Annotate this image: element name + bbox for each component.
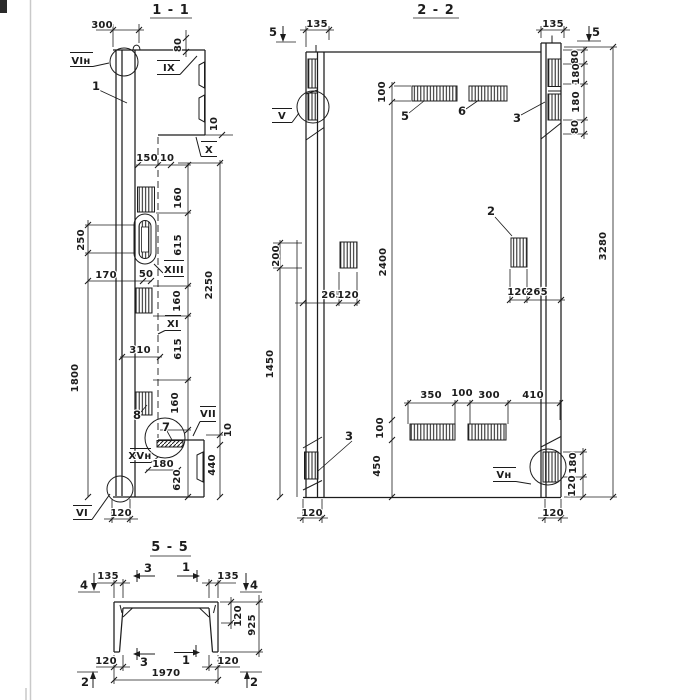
dim-135-left: 135 — [97, 571, 118, 582]
section-mark-2-left: 2 — [81, 675, 89, 689]
structural-drawing: 1 - 1 300 80 10 150 10 160 615 160 615 1… — [0, 0, 700, 700]
dim-ticks — [111, 580, 262, 683]
dim-120-flange: 120 — [233, 605, 244, 626]
dim-615-1: 615 — [173, 234, 184, 255]
node-label-xiii: XIII — [164, 265, 184, 276]
dim-200: 200 — [271, 245, 282, 266]
lifting-loop — [133, 45, 140, 50]
section-1-1-title: 1 - 1 — [152, 3, 190, 18]
bottom-plate — [468, 424, 506, 440]
part-label-2: 2 — [487, 204, 495, 218]
plate-5 — [412, 86, 457, 101]
section-mark-4-left: 4 — [80, 578, 88, 592]
node-label-xv: XVн — [128, 451, 151, 462]
dim-450: 450 — [372, 455, 383, 476]
dim-180-1: 180 — [571, 63, 582, 84]
rebar-mark-3-bottom: 3 — [140, 655, 148, 669]
dim-410: 410 — [522, 390, 543, 401]
dim-3280: 3280 — [598, 232, 609, 261]
rib-key — [308, 93, 318, 120]
embedded-plate — [138, 187, 155, 212]
slot-window — [142, 227, 149, 252]
dim-120-bottom-left: 120 — [95, 656, 116, 667]
rib-key — [308, 59, 318, 88]
embedded-plate — [136, 288, 152, 313]
detail-circle-vi-top — [110, 48, 138, 76]
detail-circle-vi-bottom — [107, 476, 133, 502]
lifting-pins — [316, 36, 552, 53]
node-label-shelves — [70, 53, 217, 520]
dim-160-3: 160 — [170, 392, 181, 413]
dim-50: 50 — [139, 269, 153, 280]
node-label-x: X — [205, 145, 213, 156]
dim-1450: 1450 — [265, 350, 276, 379]
dim-120-left: 120 — [337, 290, 358, 301]
web-plate-2 — [511, 238, 527, 267]
dim-100-top: 100 — [377, 81, 388, 102]
s2-embedded-plates — [305, 59, 562, 482]
dim-2400: 2400 — [378, 248, 389, 277]
section-mark-5-left: 5 — [269, 25, 277, 39]
scan-edge — [0, 0, 31, 700]
rib-key — [548, 94, 561, 120]
web-plate — [340, 242, 357, 268]
node-label-vii: VII — [200, 409, 216, 420]
plate-6 — [469, 86, 507, 101]
dim-180-2: 180 — [571, 91, 582, 112]
rib-key — [543, 452, 558, 482]
section-5-5-title: 5 - 5 — [151, 540, 189, 555]
rib-key — [305, 452, 319, 479]
dim-350: 350 — [420, 390, 441, 401]
part-label-3-top: 3 — [513, 111, 521, 125]
section-2-2-title: 2 - 2 — [417, 3, 455, 18]
rib-key — [548, 59, 561, 87]
dim-265-right: 265 — [526, 287, 547, 298]
rebar-mark-1-top: 1 — [182, 560, 190, 574]
dim-1970: 1970 — [152, 668, 181, 679]
dim-300: 300 — [91, 20, 112, 31]
rebar-mark-1-bottom: 1 — [182, 653, 190, 667]
section-1-1: 1 - 1 300 80 10 150 10 160 615 160 615 1… — [70, 3, 234, 523]
node-label-vi-bottom: VI — [76, 508, 88, 519]
dim-135-right: 135 — [542, 19, 563, 30]
node-label-vn: Vн — [496, 470, 511, 481]
dim-120-bottom-right: 120 — [542, 508, 563, 519]
dim-80-1: 80 — [570, 50, 581, 64]
dim-150: 150 — [136, 153, 157, 164]
dim-80: 80 — [173, 38, 184, 52]
dim-10-step: 10 — [160, 153, 174, 164]
s1-outline — [113, 45, 205, 497]
dim-120: 120 — [110, 508, 131, 519]
node-label-ix: IX — [163, 63, 175, 74]
part-label-8: 8 — [133, 408, 141, 422]
part-label-1: 1 — [92, 79, 100, 93]
section-mark-2-right: 2 — [250, 675, 258, 689]
dim-1800: 1800 — [70, 364, 81, 393]
dim-180-3: 180 — [568, 452, 579, 473]
dim-120-bottom-left: 120 — [301, 508, 322, 519]
dim-120-3: 120 — [567, 475, 578, 496]
dim-180: 180 — [152, 459, 173, 470]
rebar-mark-3-top: 3 — [144, 561, 152, 575]
part-label-7: 7 — [162, 420, 170, 434]
drawing-sheet: 1 - 1 300 80 10 150 10 160 615 160 615 1… — [0, 0, 700, 700]
dim-135-left: 135 — [306, 19, 327, 30]
bottom-plate — [410, 424, 455, 440]
dim-160-2: 160 — [172, 290, 183, 311]
dim-300: 300 — [478, 390, 499, 401]
dim-170: 170 — [95, 270, 116, 281]
node-label-vi-top: VIн — [71, 56, 90, 67]
corner-haunches — [120, 605, 216, 617]
scan-corner-mark — [0, 0, 7, 13]
part-leaders — [318, 100, 545, 471]
node-label-xi: XI — [167, 319, 179, 330]
dim-615-2: 615 — [173, 338, 184, 359]
dim-925: 925 — [247, 614, 258, 635]
section-mark-4-right: 4 — [250, 578, 258, 592]
dim-100-bottom: 100 — [375, 417, 386, 438]
dim-10-top: 10 — [209, 117, 220, 131]
dim-120-bottom-right: 120 — [217, 656, 238, 667]
part-label-3-bottom: 3 — [345, 429, 353, 443]
section-5-5: 5 - 5 135 135 4 4 3 1 120 925 120 120 3 … — [77, 540, 263, 689]
dim-160-1: 160 — [173, 187, 184, 208]
section-mark-5-right: 5 — [592, 25, 600, 39]
dim-250: 250 — [76, 229, 87, 250]
s5-outline — [114, 602, 218, 652]
part-label-6: 6 — [458, 104, 466, 118]
dim-10-console: 10 — [223, 423, 234, 437]
dim-440: 440 — [207, 454, 218, 475]
node-label-v: V — [278, 111, 286, 122]
dim-2250: 2250 — [204, 271, 215, 300]
dim-310: 310 — [129, 345, 150, 356]
dim-80-2: 80 — [570, 120, 581, 134]
dim-135-right: 135 — [217, 571, 238, 582]
console-plate — [157, 441, 183, 448]
section-2-2: 2 - 2 135 135 5 5 100 2400 100 450 80 18… — [265, 3, 617, 523]
part-label-5: 5 — [401, 109, 409, 123]
dim-100-mid: 100 — [451, 388, 472, 399]
dim-620: 620 — [172, 469, 183, 490]
